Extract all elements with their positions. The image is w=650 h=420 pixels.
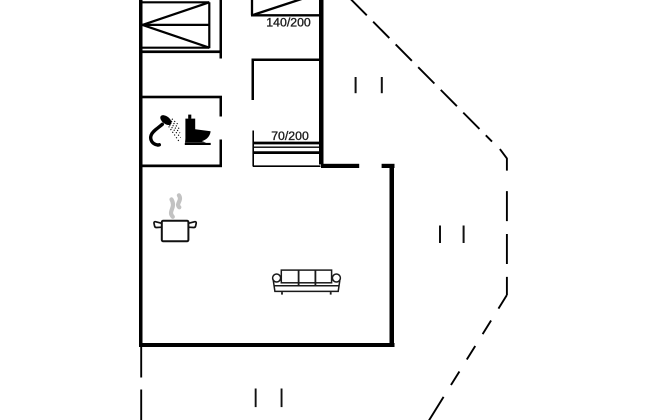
svg-text:70/200: 70/200 (271, 129, 309, 143)
svg-text:140/200: 140/200 (266, 15, 311, 29)
